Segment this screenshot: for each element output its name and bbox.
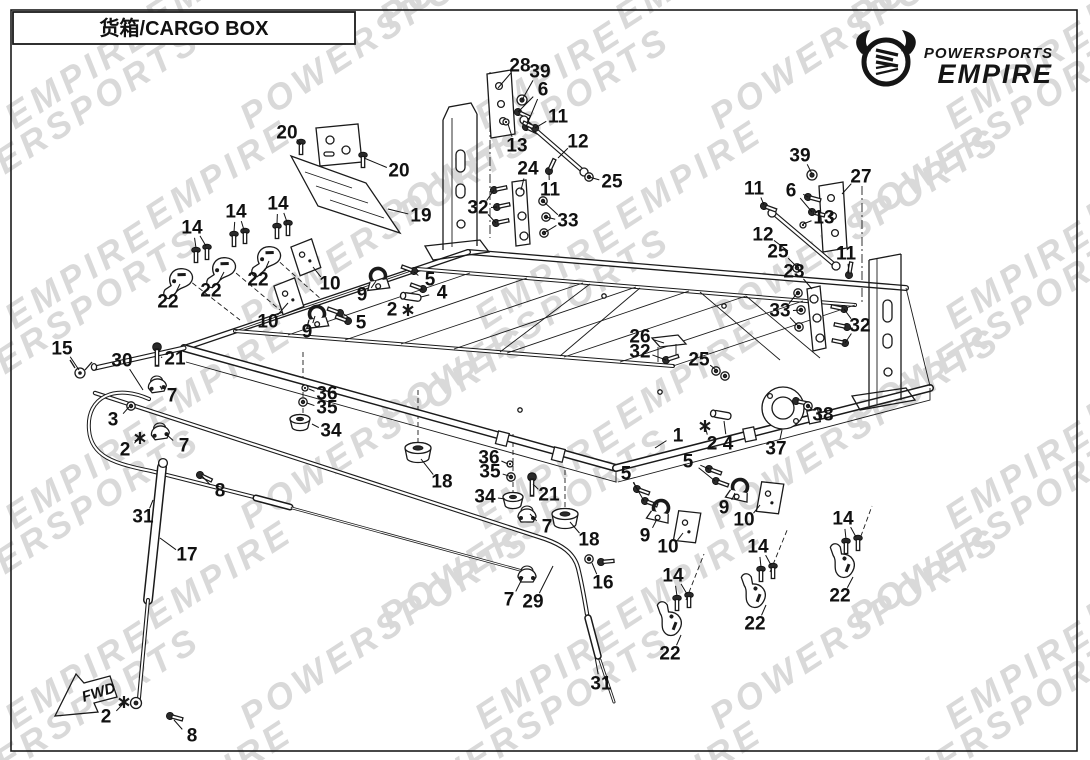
callout-14: 14: [181, 218, 203, 239]
callout-35: 35: [479, 462, 501, 483]
callout-23: 23: [783, 262, 804, 283]
callout-22: 22: [829, 586, 850, 607]
callout-39: 39: [789, 146, 810, 167]
watermark-text: EMPIRE: [607, 0, 770, 37]
callout-2: 2: [387, 300, 398, 321]
callout-leader-36: [309, 389, 314, 391]
callout-15: 15: [51, 339, 73, 360]
callout-21: 21: [538, 485, 560, 506]
brand-line2: EMPIRE: [937, 59, 1053, 89]
callout-leader-14: [760, 557, 761, 567]
callout-leader-34: [312, 424, 319, 428]
callout-31: 31: [132, 507, 154, 528]
callout-leader-2: [405, 308, 407, 309]
callout-22: 22: [247, 270, 268, 291]
callout-leader-14: [234, 222, 235, 232]
callout-14: 14: [747, 537, 769, 558]
brand-logo: POWERSPORTS EMPIRE: [856, 30, 1053, 89]
callout-leader-21: [161, 357, 162, 358]
callout-leader-4: [421, 295, 429, 297]
watermark-text: EMPIRE: [1077, 711, 1090, 760]
callout-leader-17: [160, 538, 176, 550]
callout-17: 17: [176, 545, 197, 566]
callout-10: 10: [319, 274, 340, 295]
callout-leader-4: [724, 421, 726, 434]
bracket-20: [297, 124, 368, 168]
callout-22: 22: [200, 281, 221, 302]
callout-30: 30: [111, 351, 132, 372]
callout-6: 6: [538, 80, 549, 101]
callout-2: 2: [707, 434, 718, 455]
callout-11: 11: [836, 244, 857, 265]
callout-13: 13: [506, 136, 527, 157]
watermark-text: EMPIRE: [607, 111, 770, 237]
callout-37: 37: [765, 439, 786, 460]
callout-25: 25: [601, 172, 623, 193]
callout-leader-3: [123, 407, 129, 414]
callout-14: 14: [662, 566, 684, 587]
callout-22: 22: [659, 644, 680, 665]
callout-13: 13: [813, 208, 834, 229]
callout-28: 28: [509, 56, 530, 77]
callout-2: 2: [101, 707, 112, 728]
callout-7: 7: [179, 436, 190, 457]
callout-33: 33: [557, 211, 578, 232]
callout-34: 34: [474, 487, 496, 508]
callout-5: 5: [621, 464, 632, 485]
callout-leader-35: [307, 403, 314, 406]
callout-18: 18: [431, 472, 452, 493]
callout-19: 19: [410, 206, 431, 227]
watermark-layer: POWERSPORTSEMPIREPOWERSPORTSEMPIREPOWERS…: [0, 0, 1090, 760]
callout-20: 20: [388, 161, 409, 182]
callout-14: 14: [832, 509, 854, 530]
callout-10: 10: [733, 510, 754, 531]
callout-22: 22: [157, 292, 178, 313]
callout-18: 18: [578, 530, 599, 551]
callout-8: 8: [187, 726, 198, 747]
callout-2: 2: [120, 440, 131, 461]
callout-34: 34: [320, 421, 342, 442]
callout-5: 5: [683, 452, 694, 473]
callout-9: 9: [302, 322, 313, 343]
callout-25: 25: [688, 350, 710, 371]
callout-8: 8: [215, 481, 226, 502]
callout-5: 5: [425, 270, 436, 291]
callout-leader-14: [845, 529, 846, 539]
callout-11: 11: [540, 180, 561, 201]
callout-9: 9: [719, 498, 730, 519]
callout-11: 11: [744, 179, 765, 200]
watermark-text: EMPIRE: [137, 511, 300, 637]
callout-leader-20: [364, 158, 387, 168]
callout-leader-29: [539, 566, 553, 593]
callout-38: 38: [812, 405, 833, 426]
callout-12: 12: [567, 132, 588, 153]
title-box: 货箱/CARGO BOX: [13, 12, 355, 44]
callout-1: 1: [673, 426, 684, 447]
page-title: 货箱/CARGO BOX: [100, 16, 270, 40]
callout-35: 35: [316, 398, 338, 419]
callout-32: 32: [467, 198, 488, 219]
callout-3: 3: [108, 410, 119, 431]
callout-24: 24: [517, 159, 539, 180]
cargo-box-parts-diagram: POWERSPORTSEMPIREPOWERSPORTSEMPIREPOWERS…: [0, 0, 1090, 760]
callout-7: 7: [542, 517, 553, 538]
callout-33: 33: [769, 301, 790, 322]
callout-9: 9: [640, 526, 651, 547]
callout-4: 4: [723, 434, 734, 455]
callout-29: 29: [522, 592, 543, 613]
callout-32: 32: [849, 316, 870, 337]
callout-leader-30: [130, 369, 143, 390]
callout-5: 5: [356, 313, 367, 334]
brand-emblem-icon: [856, 30, 916, 84]
callout-14: 14: [267, 194, 289, 215]
callout-7: 7: [504, 590, 515, 611]
watermark-text: EMPIRE: [607, 711, 770, 760]
callout-22: 22: [744, 614, 765, 635]
callout-14: 14: [225, 202, 247, 223]
callout-7: 7: [167, 386, 178, 407]
callout-27: 27: [850, 167, 871, 188]
callout-leader-32: [488, 214, 496, 223]
callout-6: 6: [786, 181, 797, 202]
callout-21: 21: [164, 349, 186, 370]
callout-leader-8: [174, 720, 182, 729]
callout-11: 11: [548, 107, 569, 128]
callout-31: 31: [590, 674, 612, 695]
callout-10: 10: [657, 537, 678, 558]
callout-leader-33: [793, 310, 801, 311]
callout-25: 25: [767, 242, 789, 263]
watermark-text: EMPIRE: [137, 711, 300, 760]
callout-4: 4: [437, 283, 448, 304]
callout-10: 10: [257, 312, 278, 333]
callout-9: 9: [357, 285, 368, 306]
callout-32: 32: [629, 342, 650, 363]
callout-16: 16: [592, 573, 613, 594]
callout-20: 20: [276, 123, 297, 144]
